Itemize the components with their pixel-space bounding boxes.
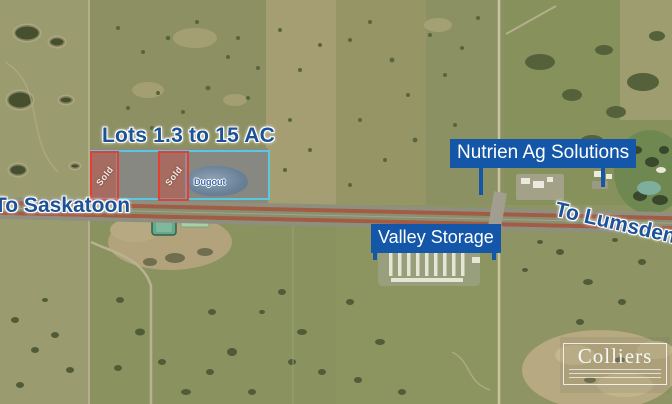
nutrien-pointer-line bbox=[479, 167, 483, 195]
colliers-wordmark: Colliers bbox=[578, 344, 653, 368]
colliers-logo-lines bbox=[569, 369, 661, 381]
aerial-map: Sold Sold Dugout Lots 1.3 to 15 AC To Sa… bbox=[0, 0, 672, 404]
nutrien-callout: Nutrien Ag Solutions bbox=[450, 139, 636, 168]
colliers-logo-frame: Colliers bbox=[563, 343, 667, 385]
direction-label-saskatoon: To Saskatoon bbox=[0, 194, 130, 218]
sold-label: Sold bbox=[163, 164, 184, 187]
valley-storage-callout: Valley Storage bbox=[371, 224, 501, 253]
nutrien-pointer-line bbox=[601, 167, 605, 187]
sold-label: Sold bbox=[94, 164, 115, 187]
colliers-logo: Colliers bbox=[560, 337, 670, 393]
dugout-label: Dugout bbox=[194, 177, 226, 187]
sold-parcel-right: Sold bbox=[158, 151, 189, 201]
lot-block-outline: Sold Sold Dugout bbox=[90, 150, 270, 200]
lots-size-label: Lots 1.3 to 15 AC bbox=[102, 124, 275, 148]
